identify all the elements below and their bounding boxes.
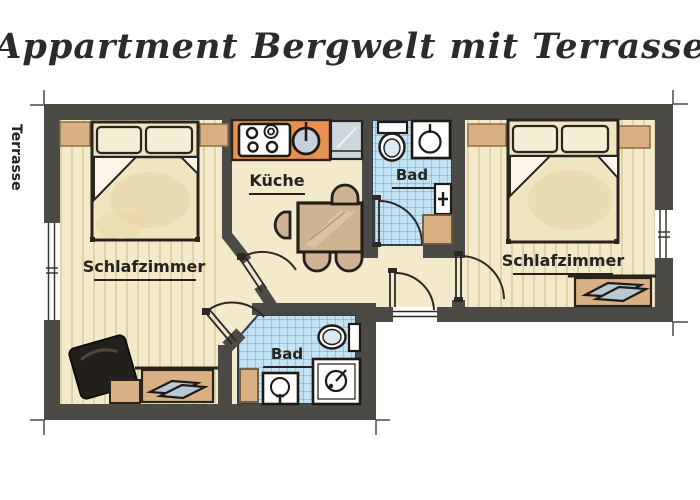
window-right [655,203,673,265]
bedroom-right-label: Schlafzimmer [502,251,625,270]
washbasin [412,121,450,158]
double-bed [90,122,200,242]
nightstand [60,122,90,146]
wall-bathbottom-left [218,345,232,405]
chair [332,185,358,204]
toilet [319,324,361,351]
page-title: Appartment Bergwelt mit Terrasse [0,26,700,67]
double-bed [506,120,619,244]
entrance-sill [393,307,437,322]
chair [304,252,330,271]
nightstand [468,124,506,146]
pillow [513,126,557,152]
wall-hall-bedroom-a [452,104,465,254]
wall-right-lower [655,265,673,322]
wall-left-upper [44,104,60,216]
window-terrace [44,216,60,327]
bath-step [240,369,258,402]
terrace-label: Terrasse [8,124,24,191]
stool [110,380,140,403]
wall-bottom-right-b [437,307,673,322]
toilet [378,122,407,161]
stove [239,124,290,156]
shower [313,359,360,404]
bench [135,368,218,402]
bath-bottom-label: Bad [271,345,303,363]
wall-top [44,104,673,120]
pillow [97,127,141,153]
bedroom-left-label: Schlafzimmer [83,257,206,276]
floorplan-page: Appartment Bergwelt mit Terrasse Terrass… [0,0,700,500]
wall-bottom-left [44,404,376,420]
washbasin [263,373,298,404]
wall-bathbottom-top [252,303,376,315]
sideboard [331,121,362,159]
wall-right-upper [655,104,673,203]
wall-bottom-right-a [376,307,393,322]
bath-top-label: Bad [396,166,428,184]
floorplan-canvas: Appartment Bergwelt mit Terrasse Terrass… [0,0,700,500]
kitchen-label: Küche [249,171,304,190]
dining-table [298,203,362,252]
pillow [562,126,608,152]
dresser [568,276,656,306]
shower-control [435,184,451,214]
chair [275,212,290,238]
chair [336,252,362,271]
nightstand [200,124,228,146]
pillow [146,127,192,153]
bath-step [423,215,452,244]
